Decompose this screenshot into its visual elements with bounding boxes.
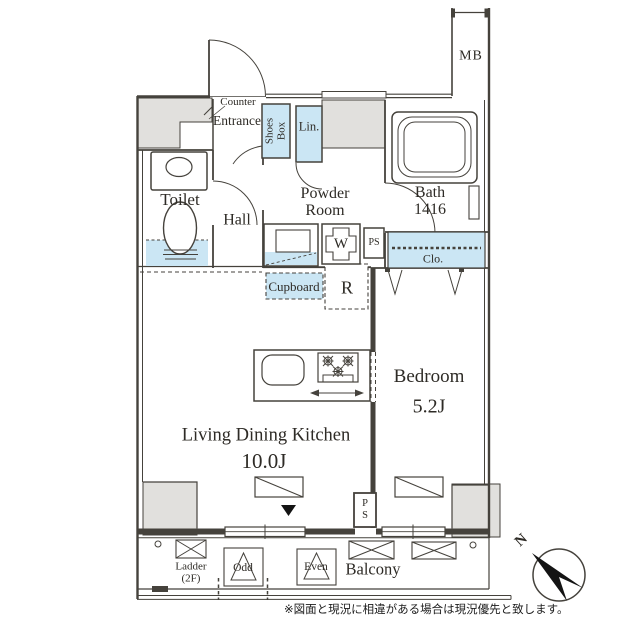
- vanity: [264, 224, 318, 266]
- pipe-space-1-box: [364, 228, 384, 258]
- disclaimer-note: ※図面と現況に相違がある場合は現況優先と致します。: [284, 601, 568, 617]
- balcony-window-bedroom: [382, 525, 445, 540]
- closet: [385, 232, 485, 294]
- linen-door: [296, 163, 322, 189]
- cupboard-box: [266, 273, 323, 299]
- linen-box: [296, 106, 322, 162]
- ladder-hatch: [176, 540, 206, 558]
- entrance-door: [209, 40, 266, 97]
- balcony-area: [137, 538, 511, 600]
- pipe-space-2-box: [354, 493, 376, 527]
- toilet-fixture: [146, 152, 208, 266]
- hatch-odd-box: [224, 548, 263, 586]
- bathtub: [392, 112, 479, 219]
- toilet-door: [213, 181, 257, 225]
- vent-hatch-a: [349, 541, 394, 559]
- balcony-entry-triangle: [281, 505, 296, 516]
- compass: [532, 549, 585, 601]
- hatch-even-box: [297, 549, 336, 585]
- vent-hatch-b: [412, 542, 456, 559]
- floorplan-drawing: [0, 0, 622, 624]
- north-arrow: [532, 553, 583, 601]
- balcony-window-ldk: [225, 525, 305, 540]
- washer-pan: [322, 224, 360, 264]
- sash-symbols: [255, 477, 443, 516]
- kitchen-counter: [254, 350, 370, 401]
- shoes-box: [262, 104, 290, 158]
- refrigerator-space: [325, 264, 368, 309]
- bath-door: [385, 183, 435, 233]
- entrance-step-arc: [233, 146, 262, 164]
- floorplan: MB Counter Entrance Shoes Box Lin. Toile…: [0, 0, 622, 624]
